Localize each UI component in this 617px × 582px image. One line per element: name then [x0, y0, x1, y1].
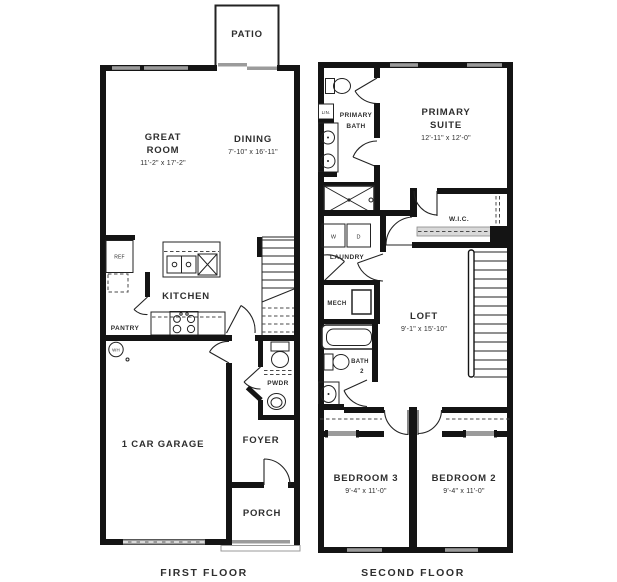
primary-suite-dims: 12'-11" x 12'-0" [421, 135, 471, 142]
dining: DINING 7'-10" x 16'-11" [228, 134, 278, 156]
primary-bath-label: PRIMARY [340, 112, 373, 119]
porch-label: PORCH [243, 508, 281, 519]
primary-suite-door [386, 217, 412, 245]
first-floor-caption: FIRST FLOOR [160, 567, 248, 579]
floor-plan-drawing: PATIO GREAT ROOM 11'-2" x 17'-2" DINING … [0, 0, 617, 582]
garage: WH 1 CAR GARAGE [100, 306, 255, 540]
wic-door [414, 191, 437, 216]
wic-label: W.I.C. [449, 216, 469, 223]
powder-sink-counter [271, 342, 289, 351]
bath2-toilet [333, 355, 349, 370]
kitchen-island [163, 242, 220, 277]
stair-treads [474, 252, 507, 377]
kitchen-hall-door [227, 306, 256, 334]
wic-shelf [417, 227, 500, 236]
pwdr-label: PWDR [267, 380, 288, 387]
mech-room: MECH [318, 280, 380, 324]
great-room: GREAT ROOM 11'-2" x 17'-2" [140, 132, 186, 167]
dryer-label: D [357, 235, 361, 241]
dining-label: DINING [234, 134, 272, 145]
bedroom2-window [445, 548, 478, 552]
great-room-dims: 11'-2" x 17'-2" [140, 160, 186, 167]
mech-unit [352, 290, 371, 314]
dining-dims: 7'-10" x 16'-11" [228, 149, 278, 156]
porch-stoop [221, 546, 300, 552]
bedroom2-dims: 9'-4" x 11'-0" [443, 488, 485, 495]
bedroom-divider-wall [409, 407, 417, 547]
bedroom2-label: BEDROOM 2 [432, 473, 497, 484]
stairs-first-floor [257, 237, 294, 335]
bath-2: BATH 2 [318, 324, 378, 410]
bedroom3-dims: 9'-4" x 11'-0" [345, 488, 387, 495]
primary-bath: LIN. PRIMARY BATH [318, 68, 380, 216]
great-room-label: GREAT [145, 132, 182, 143]
kitchen-label: KITCHEN [162, 291, 210, 302]
foyer: FOYER [232, 435, 300, 488]
front-door [264, 459, 290, 485]
pantry-door [134, 297, 148, 315]
garage-entry-door [210, 341, 230, 363]
stair-railing [469, 250, 475, 377]
garage-label: 1 CAR GARAGE [122, 439, 204, 450]
bedroom2-door [418, 410, 442, 435]
pantry-label: PANTRY [111, 325, 140, 332]
suite-window [467, 63, 502, 67]
lin-label: LIN. [322, 110, 331, 115]
bath2-toilet-tank [324, 354, 333, 370]
stair-treads-dashed [262, 308, 294, 332]
powder-room: PWDR [244, 335, 300, 420]
second-floor-plan: LIN. PRIMARY BATH PRIMARY SUITE 12'-11" … [318, 62, 513, 579]
wc-door [355, 78, 377, 104]
bedroom3-label: BEDROOM 3 [334, 473, 399, 484]
patio-label: PATIO [231, 29, 263, 40]
loft-label: LOFT [410, 311, 438, 322]
patio-slider-panel [247, 67, 277, 71]
closet-shelf [466, 431, 494, 436]
bath2-label2: 2 [360, 369, 364, 375]
cabinet-dashed [108, 274, 128, 292]
great-room-window [112, 66, 140, 70]
bedroom3-window [347, 548, 382, 552]
porch-edge [232, 540, 290, 544]
wic-rod [496, 196, 500, 227]
floor-plan-page: PATIO GREAT ROOM 11'-2" x 17'-2" DINING … [0, 0, 617, 582]
primary-suite-label2: SUITE [430, 120, 462, 131]
primary-suite-label: PRIMARY [421, 107, 470, 118]
patio-slider-panel [218, 63, 247, 67]
water-heater: WH [109, 342, 129, 361]
loft: LOFT 9'-1" x 15'-10" [401, 311, 447, 333]
first-floor-plan: PATIO GREAT ROOM 11'-2" x 17'-2" DINING … [100, 6, 300, 580]
primary-suite: PRIMARY SUITE 12'-11" x 12'-0" [421, 107, 471, 142]
stair-break-line [262, 289, 294, 302]
bedroom-3: BEDROOM 3 9'-4" x 11'-0" [334, 473, 399, 495]
loft-dims: 9'-1" x 15'-10" [401, 326, 447, 333]
bath2-door [344, 380, 367, 407]
closet-shelf [327, 431, 356, 436]
stair-newel [257, 237, 262, 257]
patio: PATIO [216, 6, 279, 71]
ref-label: REF [114, 255, 125, 261]
suite-window [390, 63, 418, 67]
foyer-label: FOYER [243, 435, 280, 446]
laundry-label: LAUNDRY [330, 254, 365, 261]
stairs-second-floor [469, 250, 508, 377]
great-room-label2: ROOM [147, 145, 180, 156]
washer-label: W [331, 235, 337, 241]
bedroom-2: BEDROOM 2 9'-4" x 11'-0" [432, 473, 497, 495]
range-counter [151, 312, 225, 336]
primary-bath-label2: BATH [346, 123, 365, 130]
primary-bath-door [353, 141, 377, 167]
wh-label: WH [112, 348, 120, 353]
powder-door [244, 367, 261, 389]
bedroom3-door [385, 410, 409, 435]
pantry: PANTRY [111, 272, 150, 332]
second-floor-caption: SECOND FLOOR [361, 567, 465, 579]
mech-label: MECH [327, 301, 346, 307]
walk-in-closet: W.I.C. [412, 188, 513, 248]
bath-toilet [334, 79, 351, 94]
powder-sink [272, 352, 289, 368]
bath2-label: BATH [351, 359, 369, 365]
great-room-window [144, 66, 188, 70]
stair-treads [262, 240, 294, 288]
